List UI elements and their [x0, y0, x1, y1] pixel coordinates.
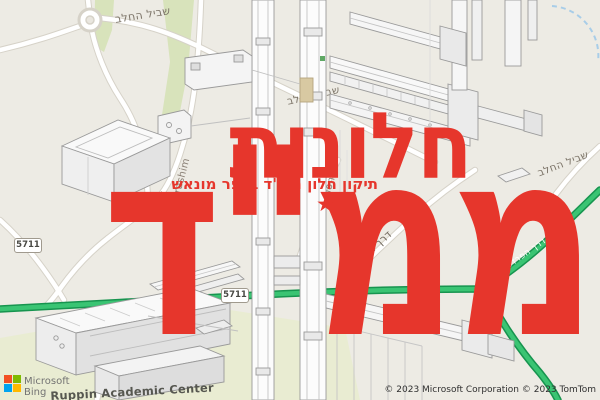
star-icon: ★: [316, 192, 335, 216]
overlay-title-line2: ממ"ד: [37, 115, 600, 375]
map-canvas[interactable]: שביל החלב שביל החלב שביל החלב דרך הפרדסי…: [0, 0, 600, 400]
